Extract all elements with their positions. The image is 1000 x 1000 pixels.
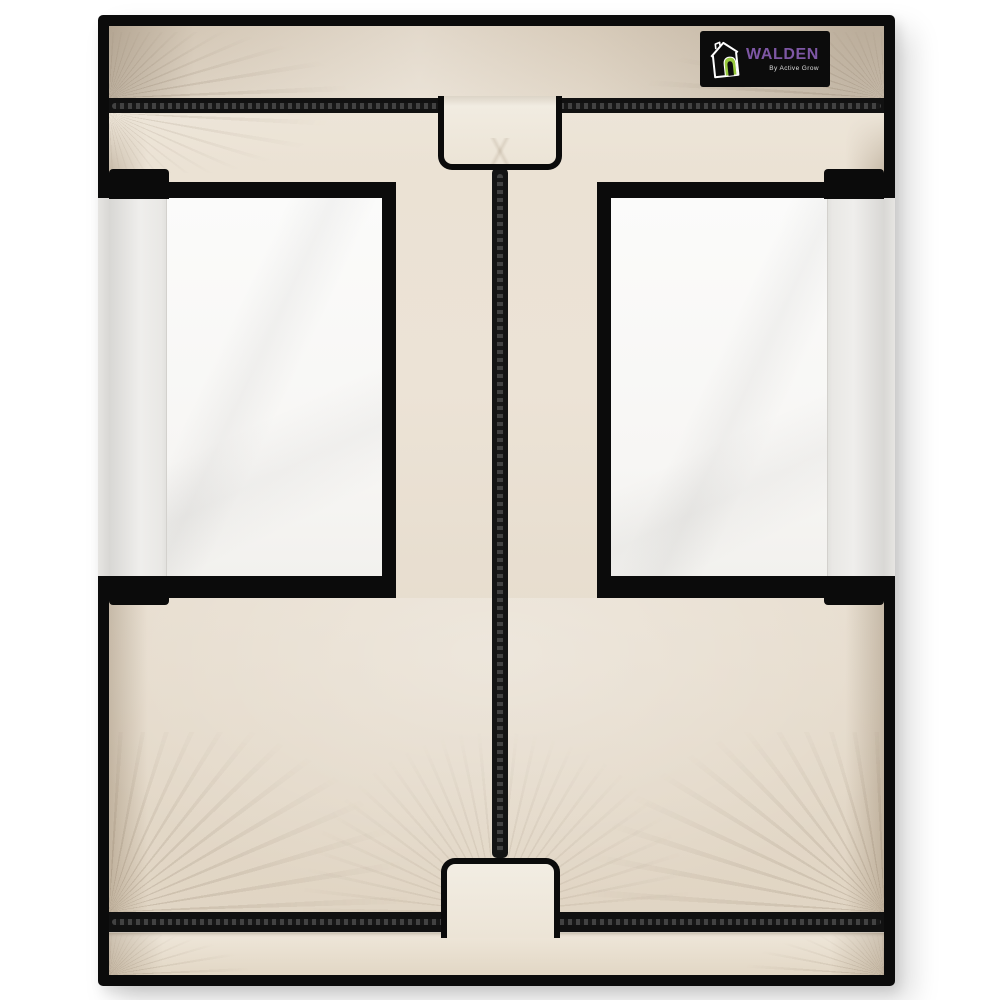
left-window-top-corner-tab [109, 169, 169, 199]
bottom-skirt-panel [109, 932, 884, 975]
bottom-zipper-flap[interactable] [441, 858, 560, 938]
left-window-right-frame [382, 182, 396, 598]
fabric-crease [109, 113, 329, 173]
product-image: WALDEN By Active Grow [0, 0, 1000, 1000]
left-window-bottom-corner-tab [109, 576, 169, 605]
brand-name: WALDEN [746, 47, 819, 63]
right-side-window-wrap [884, 198, 895, 576]
center-door-zipper[interactable] [492, 168, 508, 858]
fabric-crease [584, 732, 884, 912]
right-window-bottom-corner-tab [824, 576, 884, 605]
tent-front-fabric: WALDEN By Active Grow [109, 26, 884, 975]
fabric-crease [109, 32, 349, 98]
fabric-crease [109, 935, 249, 975]
right-window-left-frame [597, 182, 611, 598]
house-icon [705, 36, 745, 82]
brand-badge: WALDEN By Active Grow [700, 31, 830, 87]
right-window-top-corner-tab [824, 169, 884, 199]
fabric-crease [744, 935, 884, 975]
brand-text-block: WALDEN By Active Grow [746, 47, 819, 72]
grow-tent: WALDEN By Active Grow [98, 15, 895, 986]
brand-tagline: By Active Grow [769, 65, 819, 72]
fabric-crease [109, 732, 409, 912]
right-window-side-gusset [827, 198, 884, 576]
left-side-window-wrap [98, 198, 109, 576]
left-window-side-gusset [109, 198, 167, 576]
top-zipper-flap[interactable] [438, 96, 562, 170]
